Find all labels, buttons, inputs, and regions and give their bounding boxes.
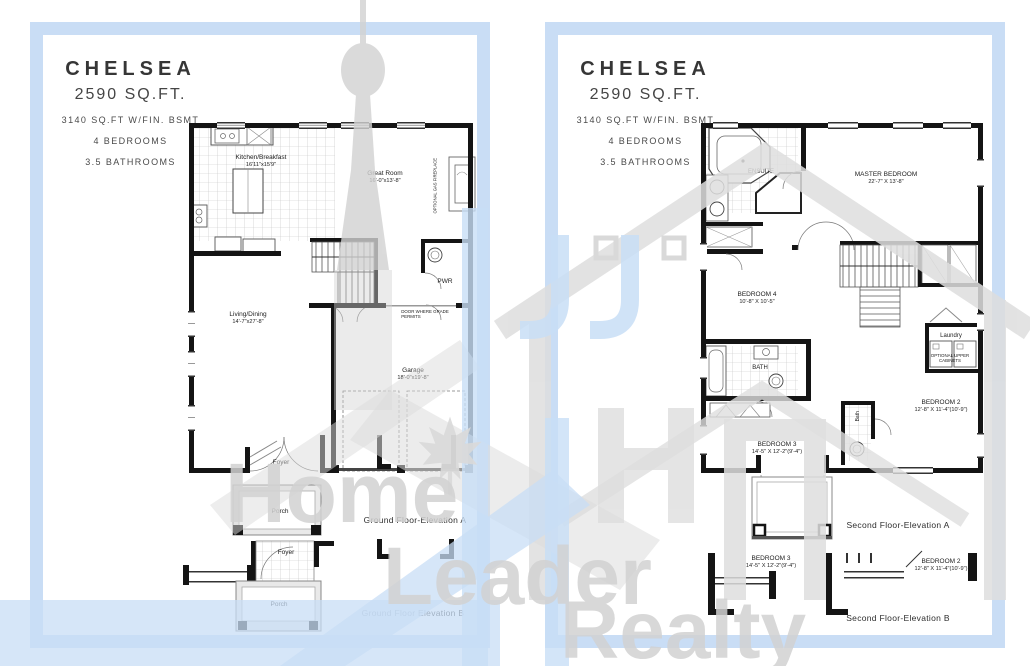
toilet-icon (769, 374, 783, 388)
kitchen-label: Kitchen/Breakfast 16'11"x15'9" (236, 154, 287, 170)
porch-b-label: Porch (271, 601, 288, 609)
toilet-icon (428, 248, 442, 262)
plan-sqft: 2590 SQ.FT. (43, 86, 218, 104)
bath-label: BATH (752, 365, 768, 373)
fireplace-note: OPTIONAL GAS FIREPLACE (432, 158, 437, 213)
porch-a-label: Porch (272, 508, 289, 516)
plan-sqft: 2590 SQ.FT. (558, 86, 733, 104)
bedroom3-label: BEDROOM 3 14'-5" X 12'-2"(9'-4") (752, 441, 802, 457)
second-elev-a-label: Second Floor-Elevation A (846, 520, 949, 531)
garage-door (407, 391, 465, 471)
ground-floor-panel: CHELSEA 2590 SQ.FT. 3140 SQ.FT W/FIN. BS… (30, 22, 490, 648)
ground-floor-drawing (181, 119, 491, 639)
bedroom3-b-label: BEDROOM 3 14'-5" X 12'-2"(9'-4") (746, 555, 796, 571)
garage-door (343, 391, 399, 471)
bath2-label: Bath (855, 411, 862, 421)
window-icon (188, 311, 195, 431)
second-elev-b-label: Second Floor-Elevation B (846, 613, 950, 624)
sink-icon (710, 202, 724, 216)
living-dining-label: Living/Dining 14'-7"x27'-8" (229, 311, 266, 327)
plan-title: CHELSEA (558, 58, 733, 81)
foyer-a-label: Foyer (273, 459, 290, 467)
ground-elev-b-label: Ground Floor Elevation B (362, 608, 465, 619)
garage-label: Garage 18'-0"x19'-8" (397, 367, 428, 383)
cabinets-note: OPTIONAL UPPER CABINETS (931, 353, 969, 364)
toilet-icon (850, 442, 864, 456)
ground-floor-panel-inner: CHELSEA 2590 SQ.FT. 3140 SQ.FT W/FIN. BS… (43, 35, 477, 635)
great-room-label: Great Room 16'-0"x13'-8" (367, 170, 402, 186)
laundry-label: Laundry (940, 333, 962, 341)
ground-elev-a-label: Ground Floor-Elevation A (364, 515, 467, 526)
master-bedroom-label: MASTER BEDROOM 22'-7" X 13'-8" (855, 171, 917, 187)
door-grade-note: DOOR WHERE GRADE PERMITS (401, 309, 449, 320)
foyer-b-label: Foyer (278, 549, 295, 557)
second-floor-panel: CHELSEA 2590 SQ.FT. 3140 SQ.FT W/FIN. BS… (545, 22, 1005, 648)
ensuite-label: ENSUITE (748, 169, 774, 177)
bedroom2-b-label: BEDROOM 2 12'-8" X 11'-4"(10'-9") (915, 558, 968, 574)
floorplan-sheet: CHELSEA 2590 SQ.FT. 3140 SQ.FT W/FIN. BS… (0, 0, 1030, 666)
second-floor-panel-inner: CHELSEA 2590 SQ.FT. 3140 SQ.FT W/FIN. BS… (558, 35, 992, 635)
pwr-label: PWR (437, 278, 452, 286)
sink-icon (710, 180, 724, 194)
plan-title: CHELSEA (43, 58, 218, 81)
bedroom4-label: BEDROOM 4 10'-8" X 10'-5" (737, 291, 776, 307)
bedroom2-label: BEDROOM 2 12'-8" X 11'-4"(10'-9") (915, 399, 968, 415)
